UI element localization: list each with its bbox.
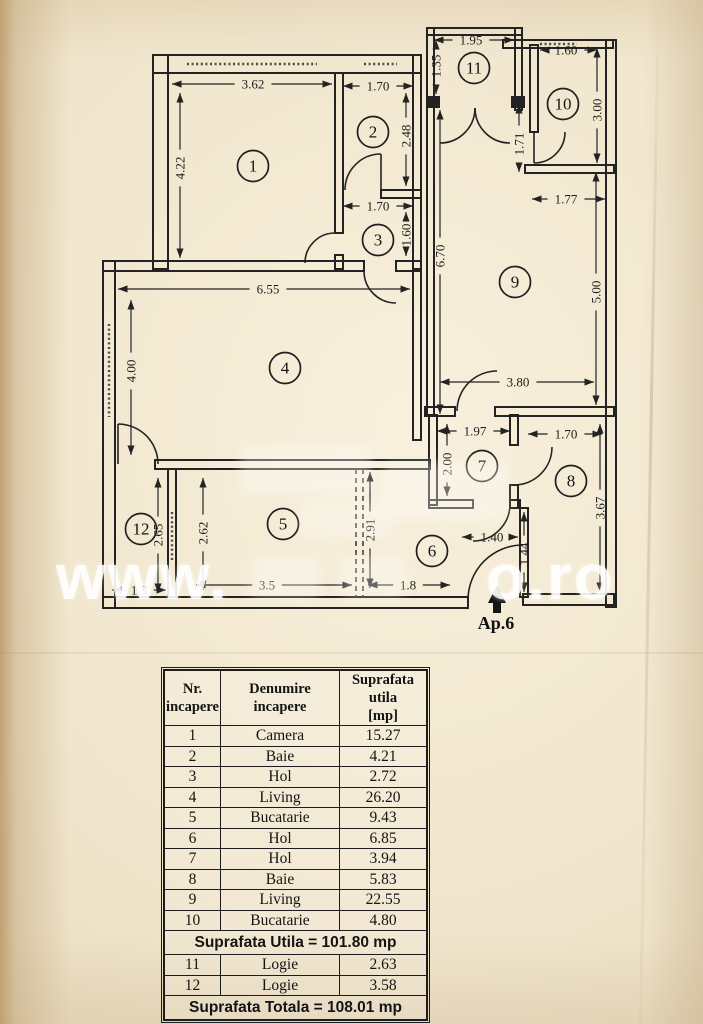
table-cell: Logie (221, 975, 340, 996)
total-cell: Suprafata Utila = 101.80 mp (164, 931, 427, 955)
table-row: 3Hol2.72 (164, 767, 427, 788)
dimension: 4.22 (173, 93, 188, 258)
dimension: 1.60 (540, 43, 597, 58)
svg-text:3.80: 3.80 (507, 375, 530, 390)
room-number: 10 (548, 89, 579, 120)
svg-text:1.60: 1.60 (399, 224, 414, 247)
svg-text:2.48: 2.48 (399, 125, 414, 148)
table-cell: Logie (221, 955, 340, 976)
svg-text:3: 3 (374, 231, 383, 250)
room-number: 3 (363, 225, 394, 256)
table-row: 7Hol3.94 (164, 849, 427, 870)
table-cell: 6 (164, 828, 221, 849)
table-cell: 15.27 (340, 726, 428, 747)
table-cell: 4.80 (340, 910, 428, 931)
table-row: 1Camera15.27 (164, 726, 427, 747)
table-row: 12Logie3.58 (164, 975, 427, 996)
table-row: 9Living22.55 (164, 890, 427, 911)
svg-text:3.62: 3.62 (242, 77, 265, 92)
entrance-label: Ap.6 (478, 613, 515, 633)
dimension: 1.97 (437, 424, 510, 439)
dimension: 1.40 (462, 530, 518, 545)
table-cell: Camera (221, 726, 340, 747)
svg-text:1.35: 1.35 (429, 55, 444, 78)
dimension: 1.70 (343, 79, 413, 94)
svg-text:1.71: 1.71 (512, 133, 527, 156)
svg-text:1.70: 1.70 (555, 427, 578, 442)
svg-text:1.40: 1.40 (481, 530, 504, 545)
table-cell: 10 (164, 910, 221, 931)
svg-text:8: 8 (567, 472, 576, 491)
table-row: 10Bucatarie4.80 (164, 910, 427, 931)
table-cell: Bucatarie (221, 808, 340, 829)
table-cell: 4.21 (340, 746, 428, 767)
dimension: 4.00 (124, 300, 139, 455)
table-cell: 22.55 (340, 890, 428, 911)
svg-text:3.00: 3.00 (590, 99, 605, 122)
table-row: 5Bucatarie9.43 (164, 808, 427, 829)
table-cell: 1 (164, 726, 221, 747)
watermark-smudge (250, 556, 320, 598)
table-total-row: Suprafata Totala = 108.01 mp (164, 996, 427, 1021)
table-cell: Baie (221, 869, 340, 890)
table-cell: Baie (221, 746, 340, 767)
svg-text:9: 9 (511, 273, 520, 292)
dimension: 5.00 (589, 172, 604, 405)
total-cell: Suprafata Totala = 108.01 mp (164, 996, 427, 1021)
table-cell: 9 (164, 890, 221, 911)
erased-watermark-smudge (240, 445, 372, 493)
table-cell: 12 (164, 975, 221, 996)
svg-text:6.70: 6.70 (433, 245, 448, 268)
header-suprafata: Suprafata utila [mp] (340, 670, 428, 726)
table-cell: 2.72 (340, 767, 428, 788)
table-cell: 5.83 (340, 869, 428, 890)
dimension: 3.00 (590, 48, 605, 163)
table-cell: 26.20 (340, 787, 428, 808)
dimension: 1.71 (512, 104, 527, 172)
table-cell: Hol (221, 767, 340, 788)
table-cell: 5 (164, 808, 221, 829)
svg-text:1.60: 1.60 (555, 43, 578, 58)
watermark-smudge (340, 556, 406, 598)
entrance-marker: Ap.6 (478, 585, 515, 633)
room-number: 5 (268, 509, 299, 540)
table-cell: Bucatarie (221, 910, 340, 931)
table-cell: 9.43 (340, 808, 428, 829)
table-cell: Living (221, 890, 340, 911)
svg-text:1.44: 1.44 (517, 542, 532, 565)
table-cell: 3 (164, 767, 221, 788)
room-number: 9 (500, 267, 531, 298)
table-row: 8Baie5.83 (164, 869, 427, 890)
svg-text:1.97: 1.97 (464, 424, 487, 439)
table-cell: 7 (164, 849, 221, 870)
svg-text:5.00: 5.00 (589, 281, 604, 304)
svg-text:6: 6 (428, 542, 437, 561)
room-number: 8 (556, 466, 587, 497)
table-total-row: Suprafata Utila = 101.80 mp (164, 931, 427, 955)
dimension: 1.60 (399, 212, 414, 256)
svg-text:10: 10 (555, 95, 572, 114)
dimension: 1.77 (532, 192, 605, 207)
room-number: 2 (358, 117, 389, 148)
svg-text:2.62: 2.62 (196, 522, 211, 545)
table-cell: Hol (221, 849, 340, 870)
table-cell: 11 (164, 955, 221, 976)
svg-text:11: 11 (466, 59, 482, 78)
header-denumire: Denumire incapere (221, 670, 340, 726)
table-row: 4Living26.20 (164, 787, 427, 808)
dimension: 2.65 (151, 478, 166, 593)
room-number: 11 (459, 53, 490, 84)
table-cell: 8 (164, 869, 221, 890)
table-header-row: Nr. incapere Denumire incapere Suprafata… (164, 670, 427, 726)
dimension: 3.62 (172, 77, 332, 92)
dimension: 2.48 (399, 93, 414, 186)
svg-text:12: 12 (133, 520, 150, 539)
svg-text:1: 1 (249, 157, 258, 176)
table-row: 6Hol6.85 (164, 828, 427, 849)
header-nr: Nr. incapere (164, 670, 221, 726)
svg-text:2.65: 2.65 (151, 524, 166, 547)
area-table: Nr. incapere Denumire incapere Suprafata… (163, 669, 428, 1021)
table-cell: 2.63 (340, 955, 428, 976)
erased-watermark-smudge (300, 500, 390, 538)
dimension: 1.35 (429, 40, 444, 94)
svg-text:2: 2 (369, 123, 378, 142)
table-cell: 4 (164, 787, 221, 808)
svg-text:4: 4 (281, 359, 290, 378)
table-cell: Living (221, 787, 340, 808)
svg-text:4.00: 4.00 (124, 360, 139, 383)
table-cell: 2 (164, 746, 221, 767)
svg-text:1.95: 1.95 (460, 33, 483, 48)
entrance-arrow-icon (488, 585, 506, 613)
table-cell: 3.94 (340, 849, 428, 870)
svg-text:4.22: 4.22 (173, 157, 188, 180)
dimension: 2.62 (196, 478, 211, 590)
svg-text:6.55: 6.55 (257, 282, 280, 297)
dimension: 1.70 (528, 427, 602, 442)
table-cell: 3.58 (340, 975, 428, 996)
table-row: 2Baie4.21 (164, 746, 427, 767)
table-row: 11Logie2.63 (164, 955, 427, 976)
svg-text:1.3: 1.3 (131, 583, 147, 598)
dimension: 1.70 (343, 199, 413, 214)
svg-text:1.70: 1.70 (367, 199, 390, 214)
table-cell: 6.85 (340, 828, 428, 849)
scanned-floor-plan-page: 3.621.704.222.481.701.606.554.002.652.62… (0, 0, 703, 1024)
erased-watermark-smudge (382, 462, 508, 520)
svg-text:1.70: 1.70 (367, 79, 390, 94)
svg-text:5: 5 (279, 515, 288, 534)
dimension: 3.80 (440, 375, 594, 390)
svg-text:1.77: 1.77 (555, 192, 578, 207)
room-number: 6 (417, 536, 448, 567)
svg-text:3.67: 3.67 (593, 496, 608, 519)
dimension: 1.44 (517, 512, 532, 592)
room-number: 1 (238, 151, 269, 182)
table-cell: Hol (221, 828, 340, 849)
room-number: 4 (270, 353, 301, 384)
